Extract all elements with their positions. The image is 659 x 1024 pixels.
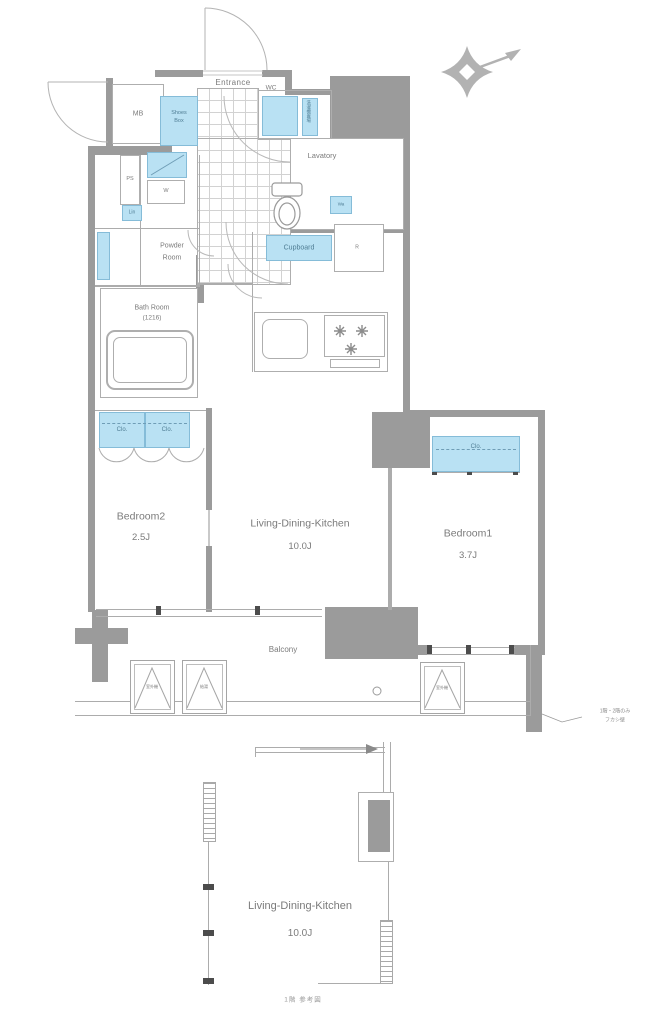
storage-small-label: Wa: [338, 203, 345, 208]
mb-label: MB: [133, 110, 144, 117]
line-bedroom1-closet-door: [432, 472, 520, 473]
closet-label-3: Clo.: [471, 444, 482, 450]
kitchen-stove: [324, 315, 385, 357]
closet-label-2: Clo.: [162, 427, 173, 433]
lp-window-right: [380, 920, 393, 984]
lp-left-wall: [208, 842, 209, 985]
lp-left-tick: [203, 978, 214, 984]
window-tick: [255, 606, 260, 615]
lp-right-wall-a: [383, 742, 384, 794]
vanity: [147, 152, 187, 178]
line-bedroom2-door-open: [208, 510, 210, 546]
wall-cross-v: [92, 610, 108, 682]
lp-top-line1: [255, 747, 385, 748]
washer-label: W: [163, 189, 168, 195]
balcony-edge2: [75, 715, 531, 716]
wall-ldk-bedroom1: [388, 468, 392, 610]
lower-plan-ldk-size: 10.0J: [288, 929, 312, 940]
line-leftcol-div: [95, 228, 140, 229]
balcony-right: [530, 645, 531, 715]
lp-right-wall-b: [390, 742, 391, 794]
entrance-hall-floor: [197, 138, 291, 285]
line-closet-top: [95, 410, 206, 411]
ps-label: PS: [126, 177, 133, 183]
line-hall-bottom: [197, 283, 253, 285]
wall-block-balcony: [325, 607, 418, 659]
outdoor-unit-label-3: 室外機: [436, 686, 448, 690]
line-leftcol-right: [199, 155, 200, 285]
wc-shelf-label: 洗濯機置場: [306, 100, 311, 123]
closet-label-1: Clo.: [117, 427, 128, 433]
balcony-label: Balcony: [269, 646, 297, 654]
line-powder-top: [140, 228, 200, 229]
powder-room-label-2: Room: [163, 254, 182, 261]
closet-folding-doors: [99, 448, 204, 462]
pipe-space-left: [97, 232, 110, 280]
kitchen-grill: [330, 359, 380, 368]
shoes-box-label-2: Box: [174, 119, 183, 125]
wall-block-bedroom1: [372, 412, 430, 468]
lp-window-left: [203, 782, 216, 842]
fridge-label: R: [355, 245, 359, 250]
wall-left: [88, 146, 95, 612]
lp-duct-fill: [368, 800, 390, 852]
entrance-door-arc: [205, 8, 267, 70]
lp-top-tick: [255, 747, 256, 757]
wall-top-left: [155, 70, 203, 77]
outdoor-unit-label-2: 給湯: [200, 685, 208, 689]
wall-bedroom1-top: [410, 410, 545, 417]
lower-plan-caption: 1階 参考図: [284, 998, 321, 1005]
window-ldk-line2: [96, 616, 322, 617]
line-bath-top: [95, 285, 200, 287]
wall-right-extension: [526, 652, 542, 732]
entrance-threshold: [203, 71, 263, 75]
bath-room-label-2: (1216): [143, 316, 162, 323]
ldk-label: Living-Dining-Kitchen: [250, 518, 349, 529]
outdoor-unit-label-1: 室外機: [146, 685, 158, 689]
lp-left-tick: [203, 930, 214, 936]
wc-label: WC: [266, 86, 277, 93]
lp-bottom-line: [318, 983, 390, 984]
bathtub-inner: [113, 337, 187, 383]
lp-left-tick: [203, 884, 214, 890]
line-kitchen-left: [252, 232, 253, 372]
wall-note-line-1: 1階・2階のみ: [600, 709, 631, 714]
window-bedroom1-line2: [427, 654, 515, 655]
closet-bedroom1: [432, 436, 520, 472]
wall-note-line-2: フカシ壁: [605, 718, 625, 723]
window-tick: [466, 645, 471, 654]
bedroom2-label: Bedroom2: [117, 511, 165, 522]
entrance-label: Entrance: [215, 79, 250, 87]
ldk-size: 10.0J: [288, 542, 311, 552]
floor-plan-image: Entrance MB Shoes Box WC 洗濯機置場 Lavatory …: [0, 0, 659, 1024]
lp-right-wall-c: [388, 862, 389, 920]
wall-right-lower: [538, 410, 545, 655]
compass-icon: [441, 46, 521, 98]
window-ldk-line1: [96, 609, 322, 610]
bath-room-label-1: Bath Room: [134, 304, 169, 311]
window-tick: [427, 645, 432, 654]
bedroom2-size: 2.5J: [132, 533, 150, 543]
kitchen-sink: [262, 319, 308, 359]
linen-label: Lin: [129, 210, 136, 215]
wall-right-upper: [403, 186, 410, 416]
entrance-hall-floor-upper: [197, 88, 259, 140]
balcony-drain: [373, 687, 381, 695]
wall-bedroom2-ldk-top: [206, 408, 212, 510]
hanger-pipe-bedroom2: [102, 423, 187, 424]
window-tick: [509, 645, 514, 654]
lp-top-line2: [255, 752, 385, 753]
lavatory-label: Lavatory: [308, 152, 337, 160]
cupboard-label: Cupboard: [284, 244, 315, 251]
shoes-box-label-1: Shoes: [171, 111, 187, 117]
wc-floor: [262, 96, 298, 136]
wall-note-leader: [542, 714, 582, 722]
bedroom1-size: 3.7J: [459, 551, 477, 561]
lower-plan-ldk-label: Living-Dining-Kitchen: [248, 901, 352, 913]
mb-door-arc: [48, 82, 108, 142]
window-bedroom1-line1: [427, 647, 515, 648]
bedroom1-label: Bedroom1: [444, 528, 492, 539]
wall-bedroom2-ldk-bottom: [206, 546, 212, 612]
window-tick: [156, 606, 161, 615]
powder-room-label-1: Powder: [160, 242, 184, 249]
